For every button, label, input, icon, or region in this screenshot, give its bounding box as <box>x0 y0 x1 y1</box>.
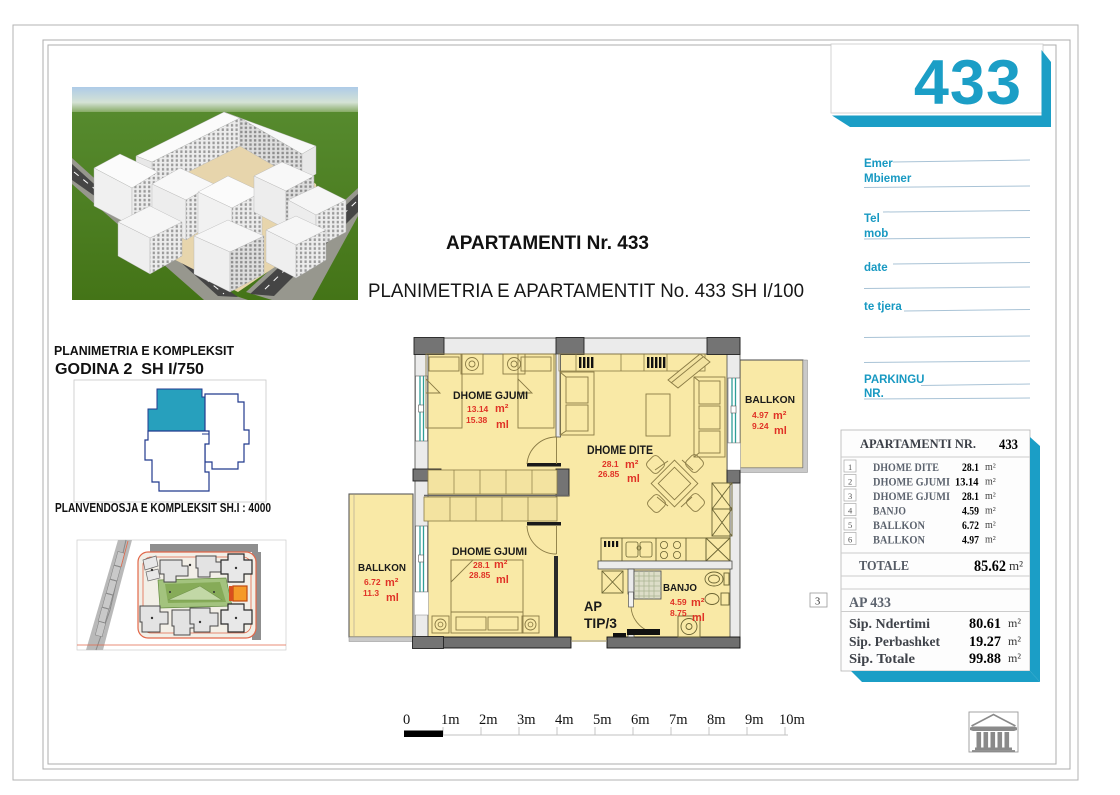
svg-text:AP 433: AP 433 <box>849 595 891 611</box>
svg-text:3: 3 <box>815 597 820 608</box>
svg-text:PLANIMETRIA E APARTAMENTIT No.: PLANIMETRIA E APARTAMENTIT No. 433 SH I/… <box>368 281 804 302</box>
svg-text:ml: ml <box>496 419 509 431</box>
svg-text:APARTAMENTI Nr. 433: APARTAMENTI Nr. 433 <box>446 233 649 254</box>
svg-text:NR.: NR. <box>864 388 884 400</box>
svg-text:DHOME DITE: DHOME DITE <box>873 462 939 474</box>
svg-text:4.59: 4.59 <box>962 504 979 518</box>
svg-text:13.14: 13.14 <box>955 475 979 489</box>
svg-text:BALLKON: BALLKON <box>745 394 795 406</box>
svg-text:28.85: 28.85 <box>469 570 491 580</box>
svg-text:BALLKON: BALLKON <box>358 562 406 574</box>
svg-text:6.72: 6.72 <box>962 518 979 532</box>
svg-text:PARKINGU: PARKINGU <box>864 374 924 386</box>
svg-text:19.27: 19.27 <box>969 634 1001 650</box>
svg-text:0: 0 <box>403 712 410 728</box>
svg-text:4m: 4m <box>555 712 574 728</box>
svg-text:GODINA 2 SH I/750: GODINA 2 SH I/750 <box>55 361 204 378</box>
svg-text:APARTAMENTI NR.: APARTAMENTI NR. <box>860 436 976 451</box>
svg-text:m²: m² <box>773 410 787 422</box>
svg-text:Sip. Ndertimi: Sip. Ndertimi <box>849 617 930 632</box>
svg-text:PLANVENDOSJA E KOMPLEKSIT SH.I: PLANVENDOSJA E KOMPLEKSIT SH.I : 4000 <box>55 501 271 515</box>
svg-text:BALLKON: BALLKON <box>873 520 926 532</box>
svg-text:13.14: 13.14 <box>467 404 489 414</box>
svg-text:28.1: 28.1 <box>962 489 979 503</box>
svg-text:Mbiemer: Mbiemer <box>864 173 912 185</box>
svg-text:6: 6 <box>848 535 852 545</box>
svg-text:2: 2 <box>848 477 852 487</box>
svg-text:28.1: 28.1 <box>962 460 979 474</box>
svg-text:99.88: 99.88 <box>969 651 1001 667</box>
svg-text:m²: m² <box>985 462 996 473</box>
svg-text:3m: 3m <box>517 712 536 728</box>
svg-text:m²: m² <box>1009 558 1023 573</box>
svg-text:m²: m² <box>625 459 639 471</box>
svg-text:m²: m² <box>985 477 996 488</box>
svg-text:1: 1 <box>848 462 852 472</box>
svg-text:m²: m² <box>385 577 399 589</box>
svg-text:9.24: 9.24 <box>752 421 769 431</box>
svg-text:te tjera: te tjera <box>864 301 902 313</box>
svg-text:80.61: 80.61 <box>969 616 1001 632</box>
svg-text:m²: m² <box>985 506 996 517</box>
svg-text:5: 5 <box>848 520 852 530</box>
svg-text:4.97: 4.97 <box>752 410 769 420</box>
svg-text:TIP/3: TIP/3 <box>584 615 617 631</box>
svg-text:ml: ml <box>496 574 509 586</box>
svg-text:28.1: 28.1 <box>602 459 619 469</box>
svg-text:10m: 10m <box>779 712 806 728</box>
svg-text:PLANIMETRIA E KOMPLEKSIT: PLANIMETRIA E KOMPLEKSIT <box>54 344 234 358</box>
svg-text:9m: 9m <box>745 712 764 728</box>
svg-text:85.62: 85.62 <box>974 558 1006 575</box>
svg-text:ml: ml <box>692 612 705 624</box>
svg-text:Sip. Totale: Sip. Totale <box>849 652 915 667</box>
svg-text:m²: m² <box>985 491 996 502</box>
svg-text:ml: ml <box>774 425 787 437</box>
svg-text:m²: m² <box>691 597 705 609</box>
svg-text:m²: m² <box>1008 651 1021 665</box>
svg-text:15.38: 15.38 <box>466 415 488 425</box>
svg-text:AP: AP <box>584 598 602 614</box>
svg-text:m²: m² <box>985 535 996 546</box>
svg-text:Emer: Emer <box>864 158 893 170</box>
svg-text:Sip. Perbashket: Sip. Perbashket <box>849 635 940 650</box>
svg-text:Tel: Tel <box>864 213 880 225</box>
svg-text:433: 433 <box>999 437 1018 453</box>
svg-text:DHOME GJUMI: DHOME GJUMI <box>873 477 950 489</box>
svg-text:DHOME GJUMI: DHOME GJUMI <box>873 491 950 503</box>
svg-text:1m: 1m <box>441 712 460 728</box>
svg-text:DHOME GJUMI: DHOME GJUMI <box>452 546 527 558</box>
svg-text:7m: 7m <box>669 712 688 728</box>
svg-text:m²: m² <box>495 403 509 415</box>
svg-text:28.1: 28.1 <box>473 560 490 570</box>
svg-text:DHOME DITE: DHOME DITE <box>587 445 653 457</box>
svg-text:m²: m² <box>1008 634 1021 648</box>
svg-text:6.72: 6.72 <box>364 577 381 587</box>
svg-text:3: 3 <box>848 491 852 501</box>
svg-text:433: 433 <box>914 48 1022 118</box>
svg-text:2m: 2m <box>479 712 498 728</box>
svg-text:ml: ml <box>627 473 640 485</box>
svg-text:4.59: 4.59 <box>670 597 687 607</box>
svg-text:8.75: 8.75 <box>670 608 687 618</box>
svg-text:date: date <box>864 262 888 274</box>
svg-text:m²: m² <box>1008 616 1021 630</box>
svg-text:26.85: 26.85 <box>598 469 620 479</box>
svg-text:mob: mob <box>864 228 888 240</box>
svg-text:8m: 8m <box>707 712 726 728</box>
svg-text:BANJO: BANJO <box>663 582 697 594</box>
svg-text:DHOME GJUMI: DHOME GJUMI <box>453 390 528 402</box>
svg-text:m²: m² <box>985 520 996 531</box>
svg-text:6m: 6m <box>631 712 650 728</box>
svg-text:m²: m² <box>494 559 508 571</box>
svg-text:5m: 5m <box>593 712 612 728</box>
svg-text:ml: ml <box>386 592 399 604</box>
svg-text:11.3: 11.3 <box>363 588 379 598</box>
svg-text:4.97: 4.97 <box>962 533 979 547</box>
svg-text:BALLKON: BALLKON <box>873 535 926 547</box>
svg-text:BANJO: BANJO <box>873 506 906 518</box>
svg-text:TOTALE: TOTALE <box>859 559 909 574</box>
